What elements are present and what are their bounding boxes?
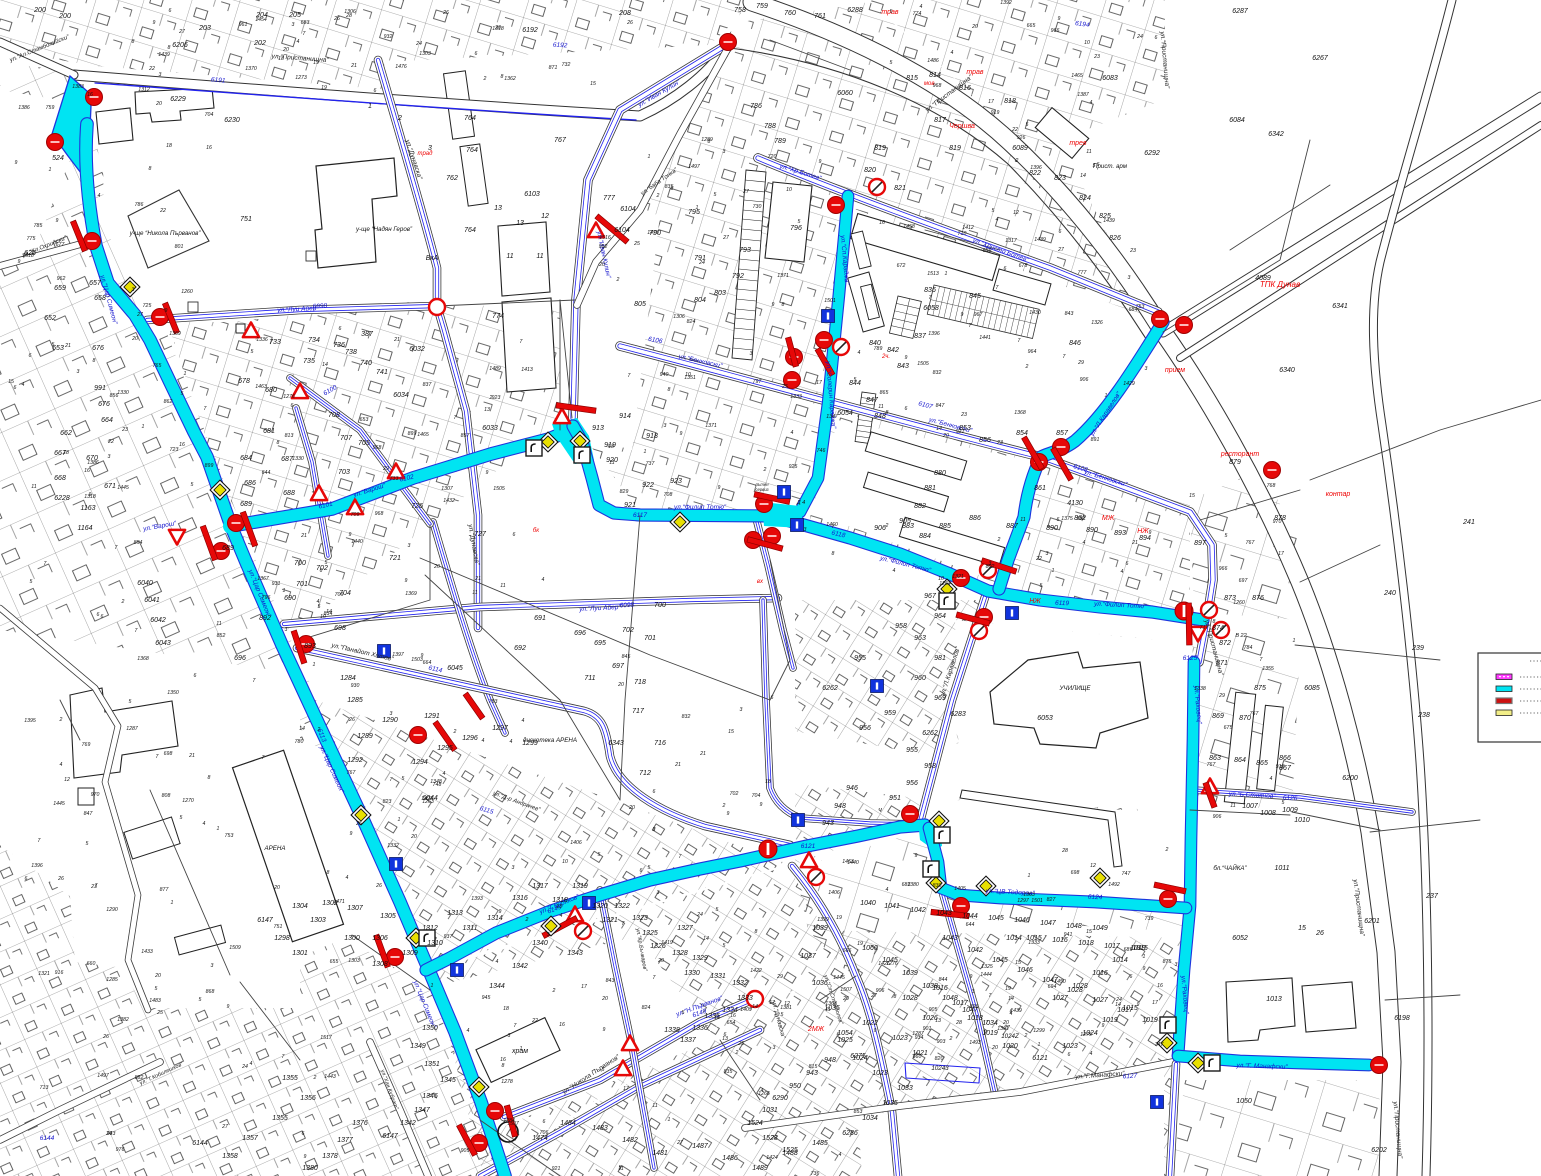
svg-text:10: 10 bbox=[562, 859, 568, 865]
svg-text:966: 966 bbox=[1219, 566, 1228, 572]
svg-text:12: 12 bbox=[1090, 863, 1096, 869]
svg-text:9: 9 bbox=[349, 532, 352, 538]
svg-text:18: 18 bbox=[166, 143, 172, 149]
svg-text:1463: 1463 bbox=[255, 384, 267, 390]
svg-text:6085: 6085 bbox=[1304, 685, 1320, 692]
svg-text:6229: 6229 bbox=[170, 96, 186, 103]
svg-text:13: 13 bbox=[516, 220, 524, 227]
svg-text:19: 19 bbox=[321, 85, 327, 91]
svg-text:дискотека АРЕНА: дискотека АРЕНА bbox=[523, 737, 577, 744]
svg-text:6: 6 bbox=[837, 1032, 840, 1038]
svg-text:11: 11 bbox=[216, 621, 221, 627]
svg-text:717: 717 bbox=[1200, 625, 1210, 631]
svg-text:8: 8 bbox=[894, 994, 897, 1000]
svg-text:914: 914 bbox=[619, 413, 631, 420]
svg-text:1325: 1325 bbox=[642, 930, 658, 937]
svg-text:1497: 1497 bbox=[688, 164, 701, 170]
svg-text:872: 872 bbox=[1219, 640, 1231, 647]
svg-text:4: 4 bbox=[886, 887, 889, 893]
svg-text:5: 5 bbox=[723, 943, 726, 949]
svg-text:1426: 1426 bbox=[878, 961, 890, 967]
svg-text:6117: 6117 bbox=[633, 512, 647, 519]
svg-text:660: 660 bbox=[913, 1054, 922, 1060]
svg-text:19: 19 bbox=[313, 60, 319, 66]
svg-text:1: 1 bbox=[1052, 568, 1055, 574]
svg-text:796: 796 bbox=[790, 225, 802, 232]
svg-text:652: 652 bbox=[44, 315, 56, 322]
svg-text:6147: 6147 bbox=[382, 1133, 399, 1140]
svg-text:1380: 1380 bbox=[907, 882, 919, 888]
svg-text:847: 847 bbox=[936, 403, 946, 409]
svg-text:691: 691 bbox=[534, 615, 546, 622]
svg-text:1345: 1345 bbox=[440, 1077, 456, 1084]
svg-text:875: 875 bbox=[1163, 959, 1172, 965]
svg-text:704: 704 bbox=[752, 793, 761, 799]
svg-text:962: 962 bbox=[57, 276, 66, 282]
svg-text:1376: 1376 bbox=[352, 1120, 368, 1127]
svg-text:20: 20 bbox=[598, 262, 605, 268]
svg-text:1344: 1344 bbox=[489, 983, 505, 990]
svg-text:690: 690 bbox=[284, 595, 296, 602]
svg-text:901: 901 bbox=[923, 1026, 932, 1032]
svg-text:733: 733 bbox=[269, 339, 281, 346]
svg-text:793: 793 bbox=[739, 247, 751, 254]
svg-text:2: 2 bbox=[616, 277, 620, 283]
svg-text:882: 882 bbox=[914, 503, 926, 510]
svg-text:1163: 1163 bbox=[80, 505, 95, 512]
svg-text:672: 672 bbox=[897, 263, 906, 269]
svg-text:5: 5 bbox=[1225, 533, 1228, 539]
svg-text:1358: 1358 bbox=[222, 1153, 238, 1160]
svg-text:1356: 1356 bbox=[300, 1095, 316, 1102]
svg-text:20: 20 bbox=[628, 805, 635, 811]
svg-text:1323: 1323 bbox=[632, 915, 648, 922]
svg-text:698: 698 bbox=[334, 625, 346, 632]
svg-text:1336: 1336 bbox=[692, 1025, 708, 1032]
svg-text:1350: 1350 bbox=[167, 690, 179, 696]
svg-text:16: 16 bbox=[500, 1057, 506, 1063]
svg-text:805: 805 bbox=[634, 301, 646, 308]
svg-text:720: 720 bbox=[768, 154, 777, 160]
svg-text:863: 863 bbox=[1209, 755, 1221, 762]
svg-text:1348: 1348 bbox=[430, 779, 442, 785]
svg-text:16: 16 bbox=[87, 92, 93, 98]
svg-text:1413: 1413 bbox=[521, 367, 533, 373]
svg-text:11: 11 bbox=[878, 404, 883, 410]
svg-text:20: 20 bbox=[601, 996, 608, 1002]
svg-text:819: 819 bbox=[949, 145, 961, 152]
svg-text:16: 16 bbox=[206, 145, 212, 151]
svg-text:666: 666 bbox=[843, 948, 852, 954]
svg-text:3: 3 bbox=[159, 72, 162, 78]
svg-text:1312: 1312 bbox=[422, 925, 438, 932]
svg-text:1441: 1441 bbox=[979, 335, 991, 341]
svg-text:6052: 6052 bbox=[1232, 935, 1248, 942]
svg-text:6041: 6041 bbox=[144, 597, 160, 604]
svg-text:961: 961 bbox=[239, 22, 248, 28]
svg-text:22: 22 bbox=[107, 439, 114, 445]
svg-text:20: 20 bbox=[942, 433, 949, 439]
svg-text:1039: 1039 bbox=[812, 925, 828, 932]
svg-text:921: 921 bbox=[552, 1166, 561, 1172]
svg-text:3: 3 bbox=[657, 890, 660, 896]
svg-text:15: 15 bbox=[1086, 929, 1092, 935]
svg-text:6103: 6103 bbox=[524, 191, 540, 198]
svg-text:9: 9 bbox=[819, 159, 822, 165]
svg-text:767: 767 bbox=[1250, 711, 1260, 717]
svg-text:808: 808 bbox=[162, 793, 171, 799]
svg-text:В 22: В 22 bbox=[1235, 633, 1246, 639]
svg-text:МЖ: МЖ bbox=[1102, 515, 1115, 522]
svg-text:970: 970 bbox=[91, 792, 100, 798]
svg-text:1507: 1507 bbox=[507, 1121, 520, 1127]
svg-text:Д 4: Д 4 bbox=[796, 500, 805, 506]
svg-text:20: 20 bbox=[1002, 1020, 1009, 1026]
svg-text:764: 764 bbox=[466, 147, 478, 154]
svg-text:815: 815 bbox=[809, 1064, 818, 1070]
svg-text:6: 6 bbox=[29, 353, 32, 359]
svg-text:918: 918 bbox=[646, 433, 658, 440]
svg-text:6275: 6275 bbox=[850, 1053, 866, 1060]
svg-text:1351: 1351 bbox=[424, 1061, 440, 1068]
svg-text:716: 716 bbox=[654, 740, 666, 747]
svg-text:АРЕНА: АРЕНА bbox=[264, 845, 286, 852]
svg-text:29: 29 bbox=[1077, 360, 1084, 366]
svg-text:1338: 1338 bbox=[664, 1027, 680, 1034]
svg-text:6: 6 bbox=[374, 88, 377, 94]
svg-text:4: 4 bbox=[1090, 100, 1093, 106]
svg-text:3: 3 bbox=[211, 963, 214, 969]
svg-text:783: 783 bbox=[489, 699, 498, 705]
svg-text:1430: 1430 bbox=[1029, 310, 1041, 316]
svg-text:1450: 1450 bbox=[1054, 979, 1066, 985]
svg-text:5: 5 bbox=[781, 1012, 784, 1018]
svg-text:1017: 1017 bbox=[1117, 1007, 1134, 1014]
svg-text:22: 22 bbox=[148, 66, 155, 72]
svg-text:20: 20 bbox=[282, 47, 289, 53]
svg-text:718: 718 bbox=[634, 679, 646, 686]
svg-text:725: 725 bbox=[143, 303, 152, 309]
svg-text:958: 958 bbox=[895, 623, 907, 630]
svg-text:968: 968 bbox=[373, 445, 382, 451]
svg-text:906: 906 bbox=[1080, 377, 1089, 383]
svg-text:11: 11 bbox=[500, 583, 505, 589]
svg-text:1320: 1320 bbox=[592, 903, 608, 910]
svg-text:1054: 1054 bbox=[837, 1030, 853, 1037]
svg-text:1481: 1481 bbox=[652, 1150, 668, 1157]
svg-text:842: 842 bbox=[887, 347, 899, 354]
svg-text:1048: 1048 bbox=[942, 995, 958, 1002]
svg-text:1377: 1377 bbox=[337, 1137, 354, 1144]
svg-text:8: 8 bbox=[755, 929, 758, 935]
svg-text:26: 26 bbox=[375, 883, 382, 889]
svg-text:890: 890 bbox=[1046, 525, 1058, 532]
svg-text:819: 819 bbox=[874, 145, 886, 152]
svg-text:1018: 1018 bbox=[1078, 940, 1094, 947]
svg-text:1309: 1309 bbox=[402, 950, 418, 957]
svg-text:27: 27 bbox=[221, 1124, 229, 1130]
svg-text:22: 22 bbox=[159, 208, 166, 214]
svg-text:11: 11 bbox=[825, 1007, 830, 1013]
svg-text:921: 921 bbox=[956, 429, 965, 435]
svg-text:919: 919 bbox=[991, 110, 1000, 116]
svg-text:3: 3 bbox=[77, 369, 80, 375]
svg-text:1164: 1164 bbox=[77, 525, 92, 532]
svg-text:3: 3 bbox=[390, 711, 393, 717]
svg-text:20: 20 bbox=[154, 973, 161, 979]
svg-text:6: 6 bbox=[724, 1032, 727, 1038]
svg-text:1312: 1312 bbox=[138, 87, 150, 93]
svg-text:891: 891 bbox=[1091, 437, 1100, 443]
svg-text:1318: 1318 bbox=[84, 494, 96, 500]
svg-text:1289: 1289 bbox=[357, 733, 373, 740]
svg-text:6267: 6267 bbox=[1312, 55, 1329, 62]
svg-text:1349: 1349 bbox=[410, 1043, 426, 1050]
svg-text:6: 6 bbox=[640, 868, 643, 874]
svg-text:2: 2 bbox=[652, 827, 656, 833]
svg-text:6: 6 bbox=[339, 326, 342, 332]
svg-text:1497: 1497 bbox=[97, 1073, 110, 1079]
svg-text:1290: 1290 bbox=[106, 907, 118, 913]
svg-text:26: 26 bbox=[57, 876, 64, 882]
svg-text:29: 29 bbox=[842, 996, 849, 1002]
svg-text:764: 764 bbox=[464, 227, 476, 234]
svg-text:709: 709 bbox=[351, 512, 360, 518]
svg-text:1370: 1370 bbox=[245, 66, 257, 72]
svg-text:15: 15 bbox=[1298, 925, 1306, 932]
svg-text:28: 28 bbox=[1061, 848, 1068, 854]
svg-text:956: 956 bbox=[906, 780, 918, 787]
svg-text:6032: 6032 bbox=[409, 346, 425, 353]
svg-text:899: 899 bbox=[408, 431, 417, 437]
svg-text:2: 2 bbox=[1025, 364, 1029, 370]
svg-text:1330: 1330 bbox=[292, 456, 304, 462]
svg-text:1367: 1367 bbox=[257, 576, 270, 582]
svg-text:1387: 1387 bbox=[1077, 92, 1090, 98]
svg-text:1019: 1019 bbox=[1130, 945, 1146, 952]
svg-text:25: 25 bbox=[156, 1010, 163, 1016]
svg-text:881: 881 bbox=[1077, 516, 1086, 522]
svg-text:702: 702 bbox=[622, 627, 634, 634]
svg-text:1439: 1439 bbox=[1034, 237, 1046, 243]
svg-text:3: 3 bbox=[1128, 275, 1131, 281]
svg-text:4: 4 bbox=[522, 718, 525, 724]
svg-text:1516: 1516 bbox=[599, 235, 611, 241]
svg-text:5: 5 bbox=[1282, 800, 1285, 806]
svg-text:1019: 1019 bbox=[1102, 1017, 1118, 1024]
svg-text:1505: 1505 bbox=[493, 486, 505, 492]
svg-text:6: 6 bbox=[1057, 517, 1060, 523]
svg-text:1319: 1319 bbox=[572, 883, 588, 890]
svg-text:2ч.: 2ч. bbox=[881, 354, 890, 360]
svg-text:668: 668 bbox=[54, 475, 66, 482]
svg-text:2: 2 bbox=[1024, 1033, 1028, 1039]
svg-text:12: 12 bbox=[541, 213, 549, 220]
svg-text:5: 5 bbox=[251, 349, 254, 355]
svg-text:23: 23 bbox=[996, 440, 1003, 446]
svg-text:1: 1 bbox=[696, 205, 699, 211]
svg-text:1022: 1022 bbox=[862, 1020, 878, 1027]
svg-text:2: 2 bbox=[525, 917, 529, 923]
svg-text:21: 21 bbox=[300, 533, 307, 539]
svg-text:1296: 1296 bbox=[462, 735, 478, 742]
svg-text:829: 829 bbox=[620, 489, 629, 495]
svg-text:792: 792 bbox=[732, 273, 744, 280]
svg-text:857: 857 bbox=[1056, 430, 1069, 437]
svg-text:1327: 1327 bbox=[677, 925, 694, 932]
svg-text:27: 27 bbox=[676, 1140, 684, 1146]
svg-text:751: 751 bbox=[240, 216, 252, 223]
svg-text:955: 955 bbox=[854, 655, 866, 662]
svg-text:1270: 1270 bbox=[182, 798, 194, 804]
svg-text:1355: 1355 bbox=[282, 1075, 298, 1082]
svg-text:952: 952 bbox=[599, 244, 608, 250]
svg-text:3: 3 bbox=[804, 527, 807, 533]
svg-text:1406: 1406 bbox=[828, 890, 840, 896]
svg-text:1: 1 bbox=[368, 103, 372, 110]
svg-text:747: 747 bbox=[1122, 871, 1132, 877]
svg-text:6228: 6228 bbox=[54, 495, 70, 502]
svg-text:723: 723 bbox=[170, 447, 179, 453]
svg-text:6343: 6343 bbox=[608, 740, 624, 747]
svg-text:814: 814 bbox=[929, 72, 941, 79]
svg-text:4: 4 bbox=[1270, 776, 1273, 782]
svg-text:4: 4 bbox=[203, 821, 206, 827]
svg-text:852: 852 bbox=[217, 633, 226, 639]
svg-text:893: 893 bbox=[1114, 530, 1126, 537]
svg-text:721: 721 bbox=[389, 555, 401, 562]
svg-text:824: 824 bbox=[642, 1005, 651, 1011]
svg-text:1439: 1439 bbox=[1010, 1008, 1022, 1014]
svg-text:21: 21 bbox=[1131, 540, 1138, 546]
svg-text:1007: 1007 bbox=[1242, 803, 1259, 810]
svg-text:9: 9 bbox=[1102, 1023, 1105, 1029]
svg-text:1350: 1350 bbox=[422, 1025, 438, 1032]
svg-text:707: 707 bbox=[340, 435, 353, 442]
svg-text:1028: 1028 bbox=[1067, 987, 1083, 994]
svg-text:741: 741 bbox=[376, 369, 388, 376]
svg-text:1422: 1422 bbox=[750, 968, 762, 974]
svg-text:1336: 1336 bbox=[256, 337, 268, 343]
svg-text:16: 16 bbox=[1157, 983, 1163, 989]
svg-text:968: 968 bbox=[375, 511, 384, 517]
svg-text:1347: 1347 bbox=[414, 1107, 431, 1114]
svg-text:1: 1 bbox=[1105, 393, 1108, 399]
svg-text:1351: 1351 bbox=[684, 375, 696, 381]
svg-text:843: 843 bbox=[1065, 311, 1074, 317]
svg-text:764: 764 bbox=[464, 115, 476, 122]
svg-text:976: 976 bbox=[116, 1147, 125, 1153]
svg-text:696: 696 bbox=[234, 655, 246, 662]
svg-text:662: 662 bbox=[60, 430, 72, 437]
svg-text:836: 836 bbox=[924, 287, 936, 294]
svg-text:1321: 1321 bbox=[38, 971, 50, 977]
svg-text:1419: 1419 bbox=[661, 940, 673, 946]
svg-text:689: 689 bbox=[1124, 947, 1133, 953]
svg-text:6: 6 bbox=[14, 385, 17, 391]
svg-text:892: 892 bbox=[259, 615, 271, 622]
svg-text:1454: 1454 bbox=[255, 17, 267, 23]
svg-text:6127: 6127 bbox=[1123, 1073, 1138, 1081]
svg-text:1445: 1445 bbox=[833, 975, 845, 981]
svg-text:8: 8 bbox=[502, 1063, 505, 1069]
svg-text:712: 712 bbox=[639, 770, 651, 777]
svg-text:27: 27 bbox=[1057, 247, 1065, 253]
svg-text:6119: 6119 bbox=[1055, 600, 1070, 607]
svg-text:701: 701 bbox=[296, 581, 308, 588]
svg-text:1378: 1378 bbox=[322, 1153, 338, 1160]
svg-text:6: 6 bbox=[101, 614, 104, 620]
svg-text:890: 890 bbox=[1086, 527, 1098, 534]
svg-text:21: 21 bbox=[474, 576, 481, 582]
svg-text:1465: 1465 bbox=[1071, 73, 1083, 79]
svg-text:943: 943 bbox=[806, 1070, 818, 1077]
svg-text:24: 24 bbox=[1115, 997, 1122, 1003]
svg-text:2МЖ: 2МЖ bbox=[807, 1026, 825, 1033]
svg-text:9: 9 bbox=[227, 1004, 230, 1010]
svg-text:4: 4 bbox=[297, 39, 300, 45]
svg-text:1008: 1008 bbox=[1260, 810, 1276, 817]
svg-text:26: 26 bbox=[1315, 930, 1324, 937]
svg-text:4: 4 bbox=[467, 1028, 470, 1034]
svg-text:240: 240 bbox=[1383, 590, 1396, 597]
svg-text:12: 12 bbox=[64, 777, 70, 783]
svg-text:659: 659 bbox=[54, 285, 66, 292]
svg-text:964: 964 bbox=[934, 613, 946, 620]
svg-text:1023: 1023 bbox=[872, 1070, 888, 1077]
svg-text:15: 15 bbox=[590, 81, 596, 87]
svg-text:3: 3 bbox=[989, 561, 992, 567]
svg-text:847: 847 bbox=[866, 397, 879, 404]
svg-text:1060: 1060 bbox=[862, 945, 878, 952]
svg-text:5: 5 bbox=[155, 986, 158, 992]
svg-text:6262: 6262 bbox=[922, 730, 938, 737]
svg-text:6126: 6126 bbox=[1283, 795, 1298, 803]
svg-text:2: 2 bbox=[1165, 847, 1169, 853]
svg-text:6084: 6084 bbox=[1229, 117, 1245, 124]
svg-text:9: 9 bbox=[905, 355, 908, 361]
svg-text:1326: 1326 bbox=[1091, 320, 1103, 326]
svg-text:8: 8 bbox=[93, 358, 96, 364]
svg-text:876: 876 bbox=[1252, 595, 1264, 602]
svg-text:717: 717 bbox=[632, 708, 645, 715]
svg-text:5: 5 bbox=[129, 699, 132, 705]
svg-text:700: 700 bbox=[294, 560, 306, 567]
svg-text:4: 4 bbox=[951, 50, 954, 56]
svg-text:1307: 1307 bbox=[347, 905, 364, 912]
svg-text:11: 11 bbox=[536, 253, 543, 260]
svg-text:9: 9 bbox=[1149, 530, 1152, 536]
svg-text:1313: 1313 bbox=[447, 910, 463, 917]
svg-text:6033: 6033 bbox=[482, 425, 498, 432]
svg-text:4: 4 bbox=[920, 4, 923, 10]
svg-text:21: 21 bbox=[188, 753, 195, 759]
svg-text:6191: 6191 bbox=[211, 76, 226, 84]
svg-text:5: 5 bbox=[86, 841, 89, 847]
svg-text:21: 21 bbox=[674, 762, 681, 768]
svg-text:832: 832 bbox=[933, 370, 942, 376]
svg-text:1474: 1474 bbox=[532, 1135, 548, 1142]
svg-text:1033: 1033 bbox=[897, 1085, 913, 1092]
svg-text:1: 1 bbox=[1293, 638, 1296, 644]
svg-text:1432: 1432 bbox=[443, 498, 455, 504]
svg-text:1465: 1465 bbox=[417, 432, 429, 438]
svg-text:237: 237 bbox=[1425, 893, 1439, 900]
svg-text:5: 5 bbox=[854, 377, 857, 383]
svg-text:14: 14 bbox=[299, 726, 305, 732]
svg-text:767: 767 bbox=[347, 770, 357, 776]
svg-text:25: 25 bbox=[781, 384, 788, 390]
